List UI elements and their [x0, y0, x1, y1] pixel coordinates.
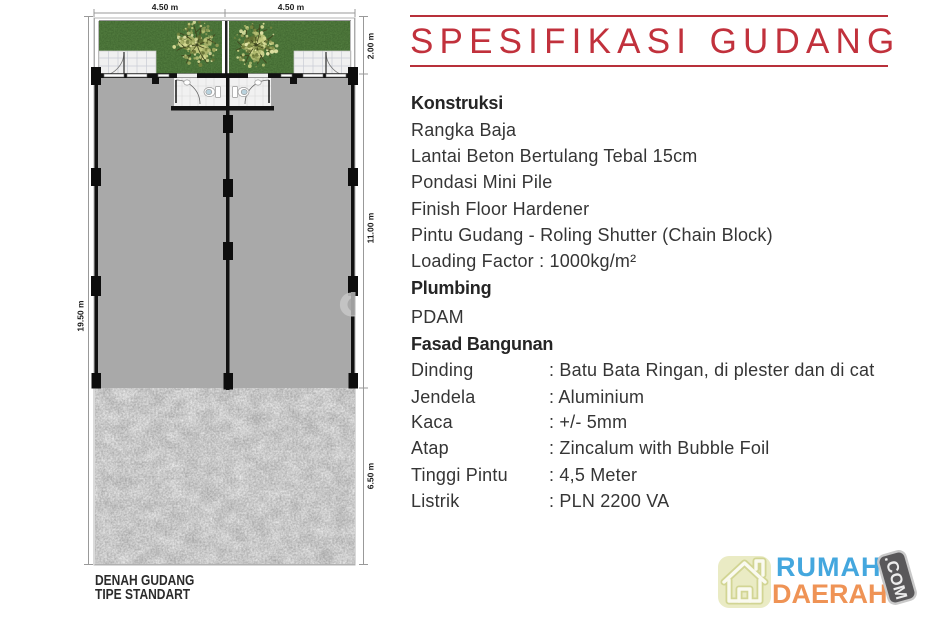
svg-text:RUMAH: RUMAH: [776, 552, 882, 582]
svg-text:19.50 m: 19.50 m: [76, 300, 86, 332]
svg-text:4.50 m: 4.50 m: [278, 2, 305, 12]
svg-text:4.50 m: 4.50 m: [152, 2, 179, 12]
svg-text:DAERAH: DAERAH: [772, 579, 888, 609]
svg-text:2.00 m: 2.00 m: [366, 32, 376, 59]
svg-text:11.00 m: 11.00 m: [366, 212, 376, 243]
svg-text:6.50 m: 6.50 m: [366, 462, 376, 489]
